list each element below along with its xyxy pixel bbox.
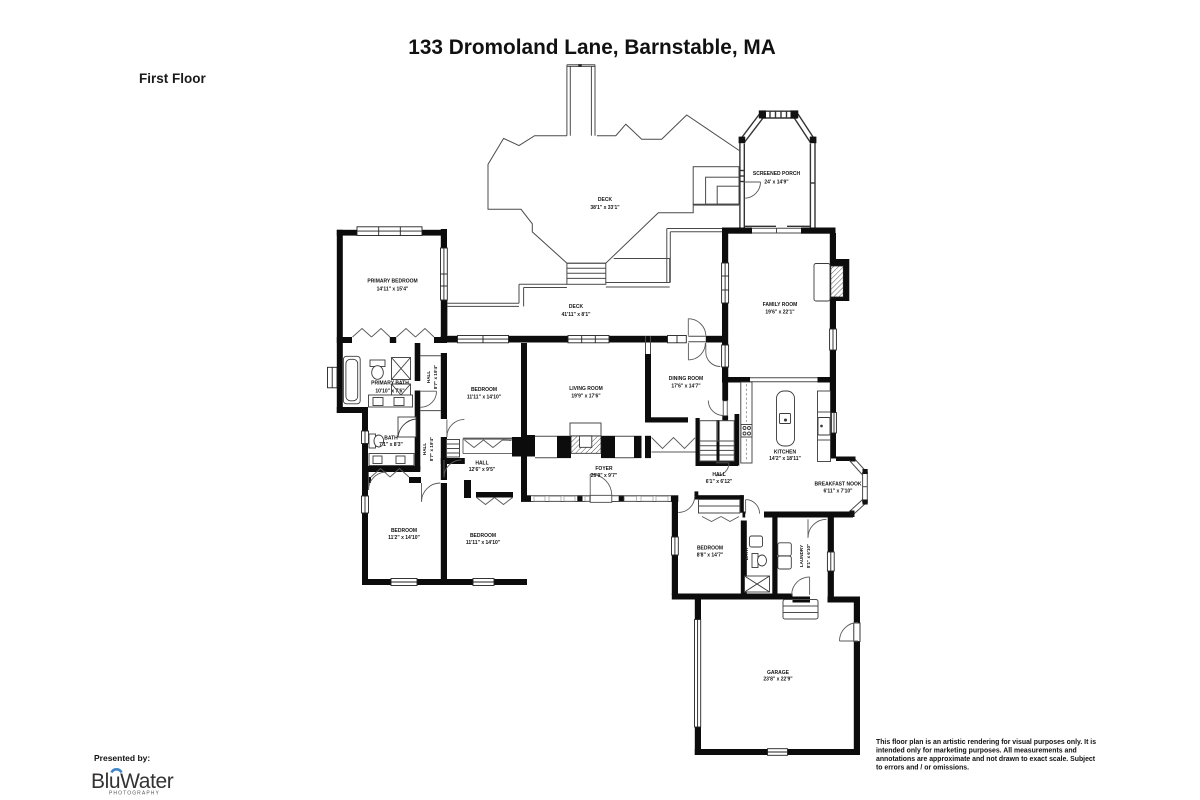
svg-text:11'2" x 14'10": 11'2" x 14'10" — [388, 535, 420, 541]
svg-text:PRIMARY BATH: PRIMARY BATH — [371, 381, 409, 387]
svg-text:8'7" x 19'4": 8'7" x 19'4" — [429, 437, 434, 461]
svg-text:SCREENED PORCH: SCREENED PORCH — [753, 171, 801, 177]
svg-text:BEDROOM: BEDROOM — [470, 533, 496, 539]
svg-text:HALL: HALL — [712, 472, 725, 478]
svg-text:BATH: BATH — [384, 436, 398, 442]
svg-text:PRIMARY BEDROOM: PRIMARY BEDROOM — [367, 279, 417, 285]
svg-text:19'6" x 22'1": 19'6" x 22'1" — [765, 310, 795, 316]
svg-text:LAUNDRY: LAUNDRY — [799, 545, 804, 567]
svg-text:24' x 14'9": 24' x 14'9" — [764, 180, 789, 186]
svg-text:14'11" x 15'4": 14'11" x 15'4" — [377, 287, 409, 293]
svg-text:38'1" x 33'1": 38'1" x 33'1" — [590, 205, 620, 211]
svg-text:8'7" x 19'4": 8'7" x 19'4" — [433, 365, 438, 389]
svg-text:133 Dromoland Lane, Barnstable: 133 Dromoland Lane, Barnstable, MA — [408, 36, 776, 59]
svg-text:23'8" x 22'9": 23'8" x 22'9" — [763, 677, 793, 683]
svg-text:6'1" x 6'12": 6'1" x 6'12" — [706, 479, 733, 485]
svg-text:This floor plan is an artistic: This floor plan is an artistic rendering… — [876, 739, 1096, 746]
svg-text:BEDROOM: BEDROOM — [391, 528, 417, 534]
svg-text:BATH: BATH — [744, 547, 749, 560]
svg-text:11'11" x 14'10": 11'11" x 14'10" — [466, 540, 501, 546]
svg-text:11'11" x 14'10": 11'11" x 14'10" — [467, 395, 502, 401]
svg-text:12'6" x 9'5": 12'6" x 9'5" — [469, 467, 496, 473]
svg-text:HALL: HALL — [475, 461, 488, 467]
svg-text:BEDROOM: BEDROOM — [471, 387, 497, 393]
svg-text:8'8" x 14'7": 8'8" x 14'7" — [697, 552, 724, 558]
svg-text:10'10" x 7'6": 10'10" x 7'6" — [375, 389, 405, 395]
svg-text:DECK: DECK — [569, 304, 584, 310]
svg-text:KITCHEN: KITCHEN — [774, 450, 797, 456]
svg-text:DECK: DECK — [598, 197, 613, 203]
svg-text:DINING ROOM: DINING ROOM — [669, 376, 703, 382]
svg-text:19'9" x 17'6": 19'9" x 17'6" — [571, 394, 601, 400]
svg-text:to errors and / or omissions.: to errors and / or omissions. — [876, 765, 969, 772]
svg-text:LIVING ROOM: LIVING ROOM — [569, 386, 603, 392]
svg-text:Presented by:: Presented by: — [94, 753, 150, 763]
svg-text:17'6" x 14'7": 17'6" x 14'7" — [671, 384, 701, 390]
svg-text:6'11" x 7'10": 6'11" x 7'10" — [823, 489, 853, 495]
svg-text:FOYER: FOYER — [595, 466, 613, 472]
svg-text:First Floor: First Floor — [139, 71, 206, 86]
svg-text:7'1" x 8'3": 7'1" x 8'3" — [379, 442, 403, 448]
svg-text:HALL: HALL — [426, 371, 431, 383]
svg-text:PHOTOGRAPHY: PHOTOGRAPHY — [109, 791, 160, 797]
svg-text:8'1" x 6'10": 8'1" x 6'10" — [806, 544, 811, 568]
svg-text:BREAKFAST NOOK: BREAKFAST NOOK — [815, 482, 862, 488]
svg-text:GARAGE: GARAGE — [767, 670, 790, 676]
svg-text:41'11" x 8'1": 41'11" x 8'1" — [561, 312, 591, 318]
svg-text:intended only for marketing pu: intended only for marketing purposes. Al… — [876, 748, 1077, 755]
svg-text:14'2" x 18'11": 14'2" x 18'11" — [769, 456, 801, 462]
svg-text:BEDROOM: BEDROOM — [697, 546, 723, 552]
svg-text:26'9" x 9'7": 26'9" x 9'7" — [591, 473, 618, 479]
svg-text:FAMILY ROOM: FAMILY ROOM — [763, 302, 798, 308]
svg-text:annotations are approximate an: annotations are approximate and not draw… — [876, 756, 1096, 763]
svg-text:HALL: HALL — [422, 443, 427, 455]
